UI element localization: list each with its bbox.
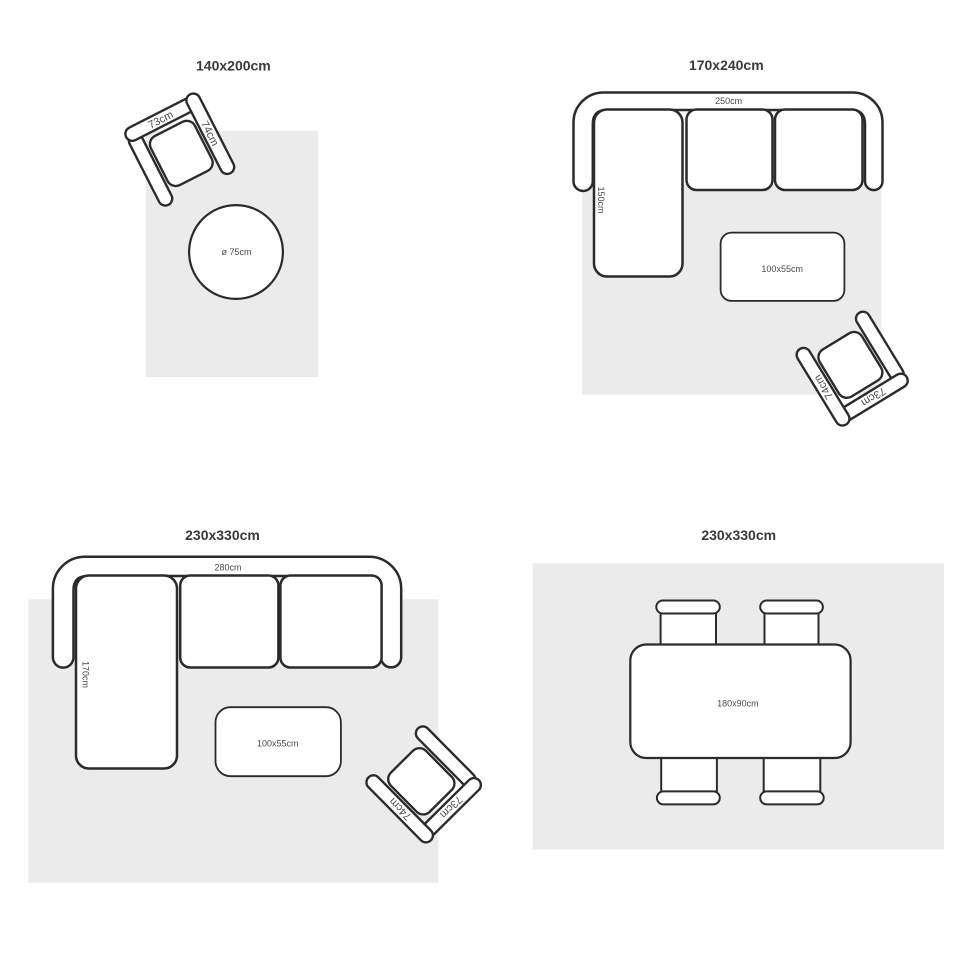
svg-text:250cm: 250cm [715,96,742,106]
svg-text:280cm: 280cm [214,563,241,573]
svg-text:180x90cm: 180x90cm [717,698,759,708]
svg-text:100x55cm: 100x55cm [257,739,299,749]
svg-text:230x330cm: 230x330cm [701,527,776,543]
svg-text:170cm: 170cm [80,661,90,688]
svg-text:140x200cm: 140x200cm [196,57,271,73]
svg-text:150cm: 150cm [596,186,606,213]
svg-text:100x55cm: 100x55cm [761,264,803,274]
svg-text:ø 75cm: ø 75cm [221,247,251,257]
svg-text:170x240cm: 170x240cm [689,57,764,73]
svg-text:230x330cm: 230x330cm [185,527,260,543]
